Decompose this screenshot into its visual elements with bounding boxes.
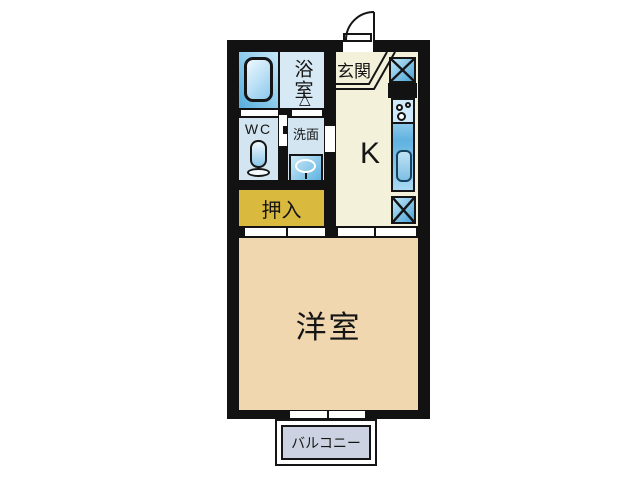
washroom-label: 洗面 (293, 118, 319, 143)
closet: 押入 (239, 190, 324, 226)
closet-sliding-door-right (288, 228, 325, 236)
closet-sliding-door-left (245, 228, 286, 236)
closet-label: 押入 (262, 194, 302, 223)
wc-label: WC (245, 118, 272, 137)
balcony-label: バルコニー (291, 433, 361, 453)
washbasin-bowl (295, 159, 316, 173)
stove-burner (397, 112, 406, 121)
shoe-cabinet-x-icon (389, 57, 416, 83)
western-room: 洋室 (239, 238, 418, 410)
washroom-door-opening (325, 126, 335, 152)
washbasin-icon (289, 154, 323, 182)
stove-icon (391, 98, 415, 124)
entrance-label-box: 玄関 (337, 58, 371, 80)
closet-top-wall (239, 180, 324, 190)
folding-door-triangle-icon: △ (299, 92, 311, 107)
stove-burner (405, 102, 411, 108)
entrance-label: 玄関 (337, 57, 371, 82)
kitchen-sink-icon (396, 150, 412, 182)
window-right (329, 411, 365, 418)
balcony-floor: バルコニー (281, 425, 371, 460)
western-room-label: 洋室 (296, 302, 362, 347)
bathtub-icon (244, 57, 273, 102)
window-left (290, 411, 327, 418)
washbasin-drain (305, 173, 307, 179)
kitchen-label: K (360, 137, 380, 171)
floor-plan-page: 浴室 △ WC 洗面 押入 洋室 バルコニー (0, 0, 640, 480)
bathroom-door-opening-washroom-side (292, 110, 322, 116)
stove-burner (396, 104, 403, 111)
toilet-base (247, 168, 270, 177)
entrance-wall-stub (388, 83, 417, 98)
refrigerator-x-icon (391, 196, 416, 224)
kitchen-sliding-door-right (376, 228, 416, 236)
kitchen-sliding-door-left (338, 228, 374, 236)
kitchen-label-box: K (352, 136, 388, 172)
toilet-icon (250, 140, 267, 168)
entry-door-arc-icon (341, 6, 379, 42)
wc-door-panel-tick (283, 126, 287, 134)
